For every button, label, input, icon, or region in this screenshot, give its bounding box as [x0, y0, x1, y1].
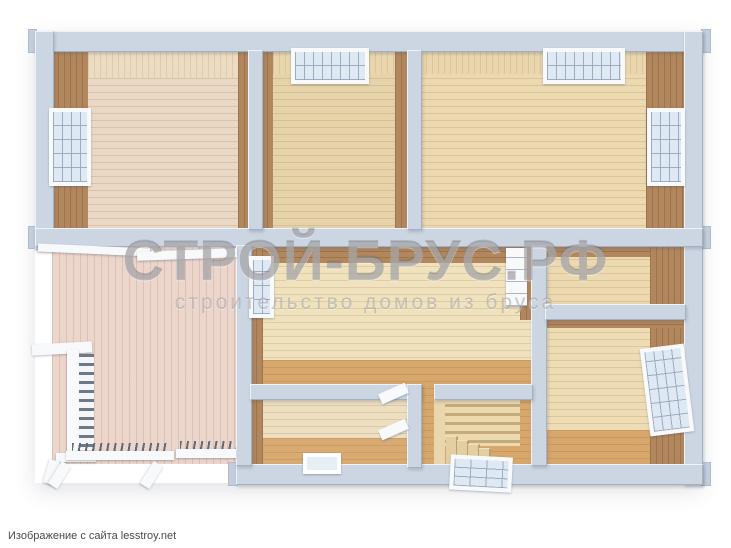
railing-south-rail-2	[176, 449, 236, 458]
room-middle-north-face	[250, 245, 531, 263]
wall-topmiddle-topright	[407, 50, 422, 230]
room-top-left-east-face	[238, 50, 248, 228]
room-top-left-north-face	[88, 50, 238, 78]
wall-stair-north	[434, 384, 533, 400]
wall-topleft-topmiddle	[248, 50, 263, 230]
railing-south-rail-1	[66, 451, 174, 460]
window-terrace-wall	[249, 256, 274, 318]
white-door-leaf	[506, 248, 527, 306]
floor-plan-render: СТРОЙ-БРУС.РФ строительство домов из бру…	[0, 0, 731, 548]
attribution-text: Изображение с сайта lesstroy.net	[8, 530, 176, 542]
wall-middle-horizontal	[35, 228, 703, 247]
railing-left-balusters	[79, 354, 94, 450]
window-topright-north	[543, 48, 625, 84]
window-topmiddle-north	[291, 48, 369, 84]
wall-right-small-south	[545, 304, 686, 320]
floor-hatch	[303, 453, 341, 474]
window-topright-east	[647, 108, 685, 186]
room-right-small-east-face	[650, 245, 684, 304]
room-top-middle-east-face	[395, 50, 407, 228]
window-topleft-west	[49, 108, 91, 186]
wall-small-room-east	[407, 384, 422, 468]
stair-stringer	[434, 398, 445, 466]
wall-right-vertical	[531, 245, 547, 466]
railing-left-rail	[67, 350, 79, 452]
room-middle-backwall	[250, 245, 531, 365]
entrance-door	[449, 454, 513, 492]
